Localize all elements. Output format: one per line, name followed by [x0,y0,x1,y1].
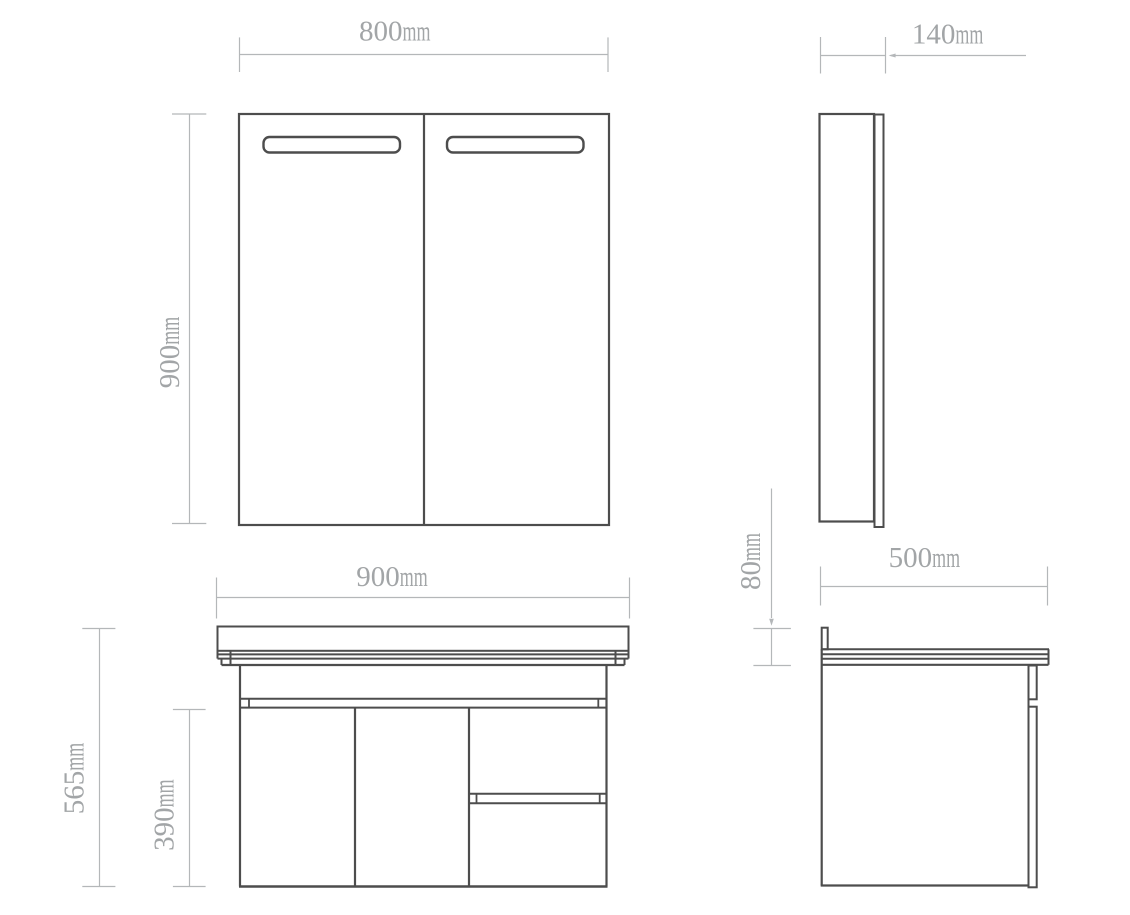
svg-text:mm: mm [155,317,186,345]
svg-text:mm: mm [736,533,767,561]
svg-text:900: 900 [356,561,400,593]
svg-text:390: 390 [149,807,181,851]
svg-text:500: 500 [889,542,933,574]
svg-text:mm: mm [955,20,983,51]
svg-text:900: 900 [154,345,186,389]
svg-text:140: 140 [912,19,956,51]
svg-text:mm: mm [149,779,180,807]
svg-text:80: 80 [735,561,767,590]
svg-text:800: 800 [359,16,403,48]
svg-text:mm: mm [400,562,428,593]
svg-text:mm: mm [932,543,960,574]
svg-text:mm: mm [403,16,431,47]
svg-text:mm: mm [59,743,90,771]
svg-text:565: 565 [58,771,90,815]
